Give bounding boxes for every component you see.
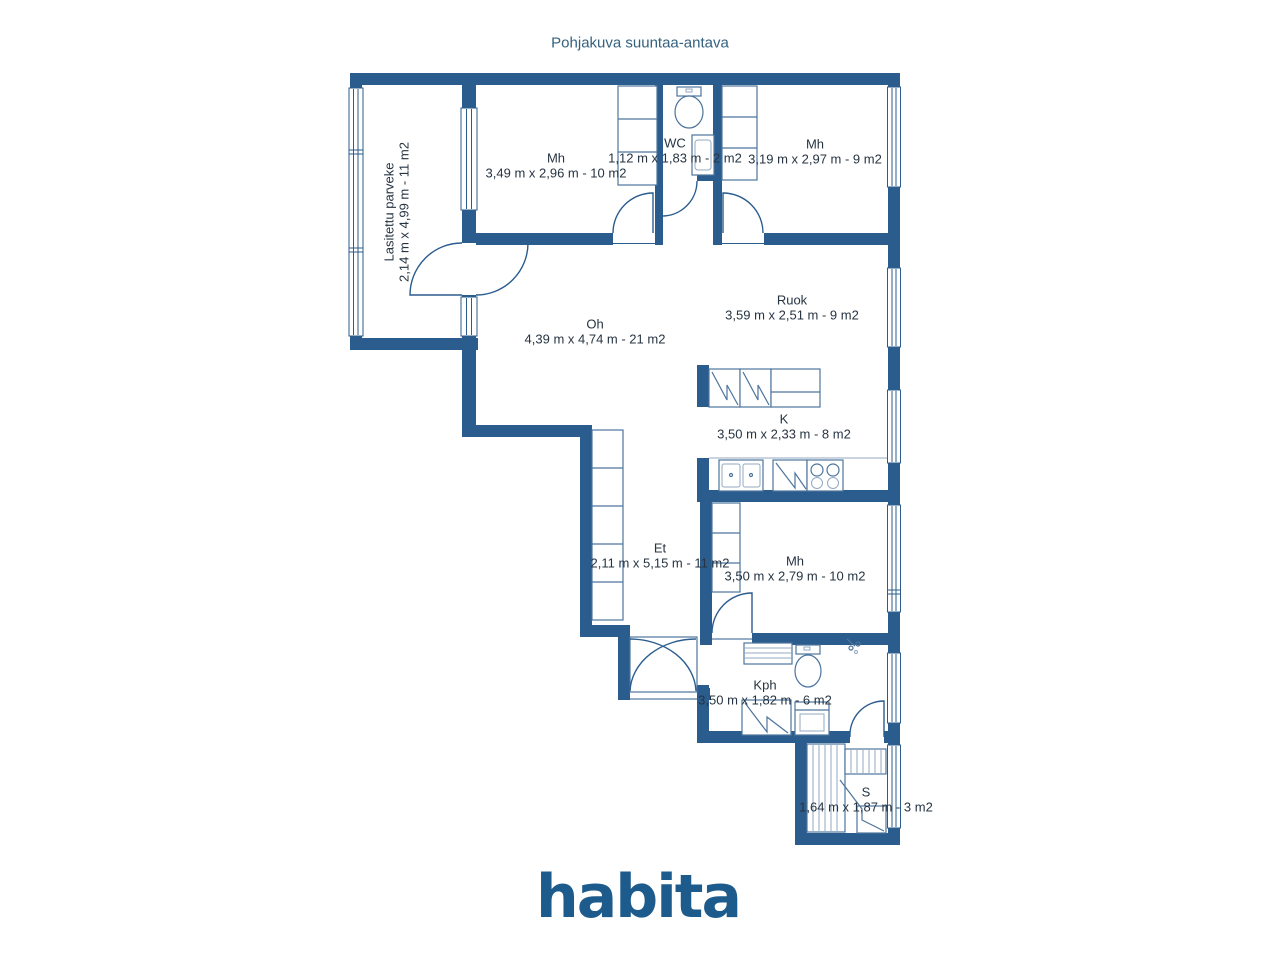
room-label-ruok: Ruok 3,59 m x 2,51 m - 9 m2 xyxy=(725,294,859,323)
et-wardrobe-icon xyxy=(592,430,623,620)
fridge-icon xyxy=(709,369,740,407)
room-name: Mh xyxy=(725,555,866,570)
room-label-wc: WC 1,12 m x 1,83 m - 2 m2 xyxy=(608,137,742,166)
kitchen-cabinet-icon xyxy=(771,369,820,407)
room-name: Mh xyxy=(748,138,882,153)
room-dims: 3,59 m x 2,51 m - 9 m2 xyxy=(725,308,859,323)
room-name: Kph xyxy=(698,679,832,694)
kitchen-window xyxy=(888,390,901,463)
room-dims: 3,49 m x 2,96 m - 10 m2 xyxy=(486,166,627,181)
room-dims: 4,39 m x 4,74 m - 21 m2 xyxy=(525,332,666,347)
divider-window-bottom xyxy=(461,297,477,336)
room-dims: 1,12 m x 1,83 m - 2 m2 xyxy=(608,151,742,166)
room-dims: 3,50 m x 2,79 m - 10 m2 xyxy=(725,569,866,584)
floorplan-page: Pohjakuva suuntaa-antava xyxy=(0,0,1280,960)
habita-logo: habita xyxy=(536,862,740,932)
wc-toilet-icon xyxy=(675,87,703,128)
room-dims: 2,14 m x 4,99 m - 11 m2 xyxy=(397,142,412,282)
room-name: WC xyxy=(608,137,742,152)
room-name: Ruok xyxy=(725,294,859,309)
fixtures xyxy=(592,86,887,833)
room-dims: 3,19 m x 2,97 m - 9 m2 xyxy=(748,152,882,167)
mh2-door xyxy=(722,193,764,244)
kph-window xyxy=(888,653,901,723)
room-name: S xyxy=(799,786,933,801)
room-name: K xyxy=(717,413,851,428)
room-label-parveke: Lasitettu parveke 2,14 m x 4,99 m - 11 m… xyxy=(383,142,412,282)
mh3-window xyxy=(888,505,901,612)
room-name: Mh xyxy=(486,152,627,167)
room-name: Et xyxy=(591,542,730,557)
kitchen-sink-icon xyxy=(719,460,763,491)
kph-shelf-icon xyxy=(744,643,792,664)
stove-icon xyxy=(807,460,843,491)
balcony-door xyxy=(410,243,528,295)
room-dims: 3,50 m x 2,33 m - 8 m2 xyxy=(717,427,851,442)
room-name: Lasitettu parveke xyxy=(383,142,398,282)
room-label-kph: Kph 3,50 m x 1,82 m - 6 m2 xyxy=(698,679,832,708)
mh2-window xyxy=(888,87,901,187)
room-label-mh2: Mh 3,19 m x 2,97 m - 9 m2 xyxy=(748,138,882,167)
room-label-s: S 1,64 m x 1,87 m - 3 m2 xyxy=(799,786,933,815)
room-label-mh3: Mh 3,50 m x 2,79 m - 10 m2 xyxy=(725,555,866,584)
wc-door xyxy=(661,181,697,216)
room-dims: 1,64 m x 1,87 m - 3 m2 xyxy=(799,800,933,815)
dishwasher-icon xyxy=(773,460,807,491)
mh3-door xyxy=(712,593,752,639)
balcony-window xyxy=(349,88,363,336)
room-label-et: Et 2,11 m x 5,15 m - 11 m2 xyxy=(591,542,730,571)
room-label-oh: Oh 4,39 m x 4,74 m - 21 m2 xyxy=(525,318,666,347)
entrance-double-door xyxy=(630,637,697,699)
mh1-door xyxy=(613,193,655,244)
divider-window-top xyxy=(461,108,477,210)
sauna-door xyxy=(850,701,884,737)
room-name: Oh xyxy=(525,318,666,333)
room-dims: 2,11 m x 5,15 m - 11 m2 xyxy=(591,556,730,571)
freezer-icon xyxy=(740,369,771,407)
ruok-window xyxy=(888,268,901,347)
room-label-mh1: Mh 3,49 m x 2,96 m - 10 m2 xyxy=(486,152,627,181)
room-label-k: K 3,50 m x 2,33 m - 8 m2 xyxy=(717,413,851,442)
room-dims: 3,50 m x 1,82 m - 6 m2 xyxy=(698,693,832,708)
